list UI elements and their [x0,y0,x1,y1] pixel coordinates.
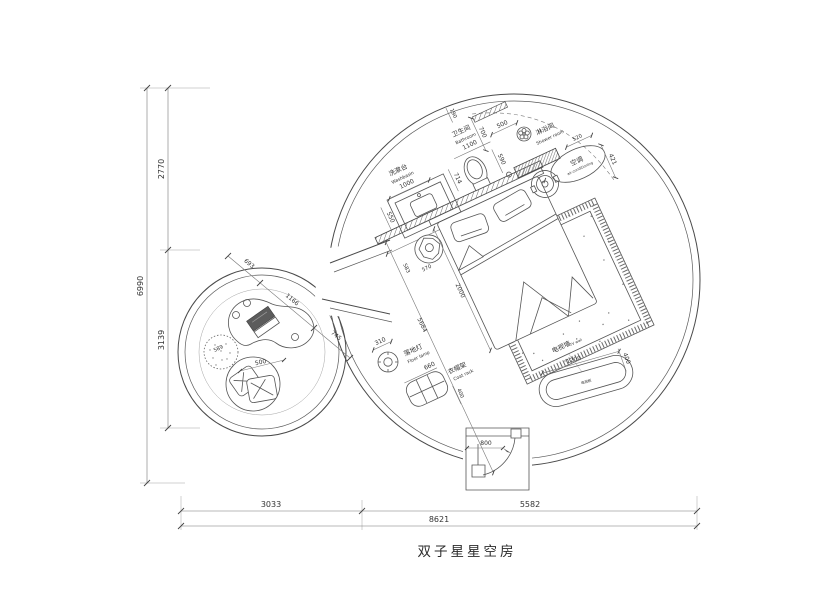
lounge-chair: 500 [226,357,286,411]
chair-pillow [246,375,278,403]
tv-depth-dim: 400 [618,346,634,371]
floor-plan: 800 1800 [0,0,837,592]
floor-lamp-label: 落地灯 Floor lamp [402,340,431,366]
dimension-bottom: 3033 5582 8621 [178,496,700,530]
svg-text:714: 714 [452,172,463,186]
room-diagonal-dim: 5684 [415,317,428,334]
width-total-dim: 8621 [429,515,449,524]
faucet [417,193,421,197]
entrance-opening-mask [463,424,532,499]
shower-room: 500 淋浴间 Shower room 590 520 [472,102,614,180]
width-left-dim: 3033 [261,500,281,509]
floor-lamp: 310 落地灯 Floor lamp [368,333,431,372]
door-width-dim: 800 [480,440,492,447]
desk-grommet [233,312,240,319]
kidney-desk [228,299,313,348]
shower-width-dim: 590 [492,146,513,179]
chair-dim: 500 [254,358,267,367]
door-post [511,429,521,438]
stool-dim-b: 570 [421,264,433,274]
tv-wall-label-zh: 电视墙 [550,338,572,355]
svg-text:310: 310 [374,336,388,347]
bed-length-dim: 2000 [454,282,467,299]
svg-text:190: 190 [448,108,458,120]
tv-wall-label-en: TV wall [568,338,582,348]
passage-opening-mask [314,236,398,322]
washbasin-depth: 550 [381,204,399,231]
bedside-stool [410,230,447,267]
shower-label: 淋浴间 Shower room [530,118,565,147]
height-top-dim: 2770 [157,159,166,179]
lounge-seg2-dim: 1166 [284,292,300,307]
shower-entry-dim: 500 [486,115,519,138]
floor-drain [517,127,531,141]
floor-lamp-dim: 310 [368,333,394,352]
washbasin-label: 洗漱台 Washbasin 1000 [376,155,432,202]
svg-text:500: 500 [496,119,510,130]
desk-grommet [244,300,251,307]
stool-dim-a: 583 [401,263,411,275]
lounge-seg3-dim: 745 [329,329,342,342]
drawing-title: 双子星星空房 [418,544,517,560]
tv-width-dim: 1200 [565,355,582,366]
tv-wall-label: 电视墙 TV wall [550,333,583,355]
ac-label-bubble: 空调 air-conditioning [545,138,610,190]
coat-rack-depth-dim: 400 [453,383,467,404]
svg-text:700: 700 [477,126,488,140]
bed [429,168,603,353]
tv-wall: 电视墙 TV wall 电视柜 1200 400 [532,333,636,410]
ac-clearance-dim: 421 [598,140,623,181]
floor-plan-canvas: 800 1800 [0,0,837,592]
toilet-dim: 714 [448,166,465,191]
height-bottom-dim: 3139 [157,330,166,350]
coat-rack-width-dim: 660 [423,361,437,372]
desk-grommet [292,334,299,341]
tv-cabinet-label: 电视柜 [580,377,592,385]
svg-text:590: 590 [496,153,507,167]
dimension-left: 6990 2770 3139 [136,85,210,486]
laptop [247,306,280,337]
svg-text:550: 550 [385,211,396,225]
pouf: 589 [204,335,238,369]
height-total-dim: 6990 [136,276,145,296]
width-right-dim: 5582 [520,500,540,509]
svg-text:421: 421 [607,153,618,166]
shower-boundary [472,113,614,180]
bench-dim: 520 [562,129,595,150]
